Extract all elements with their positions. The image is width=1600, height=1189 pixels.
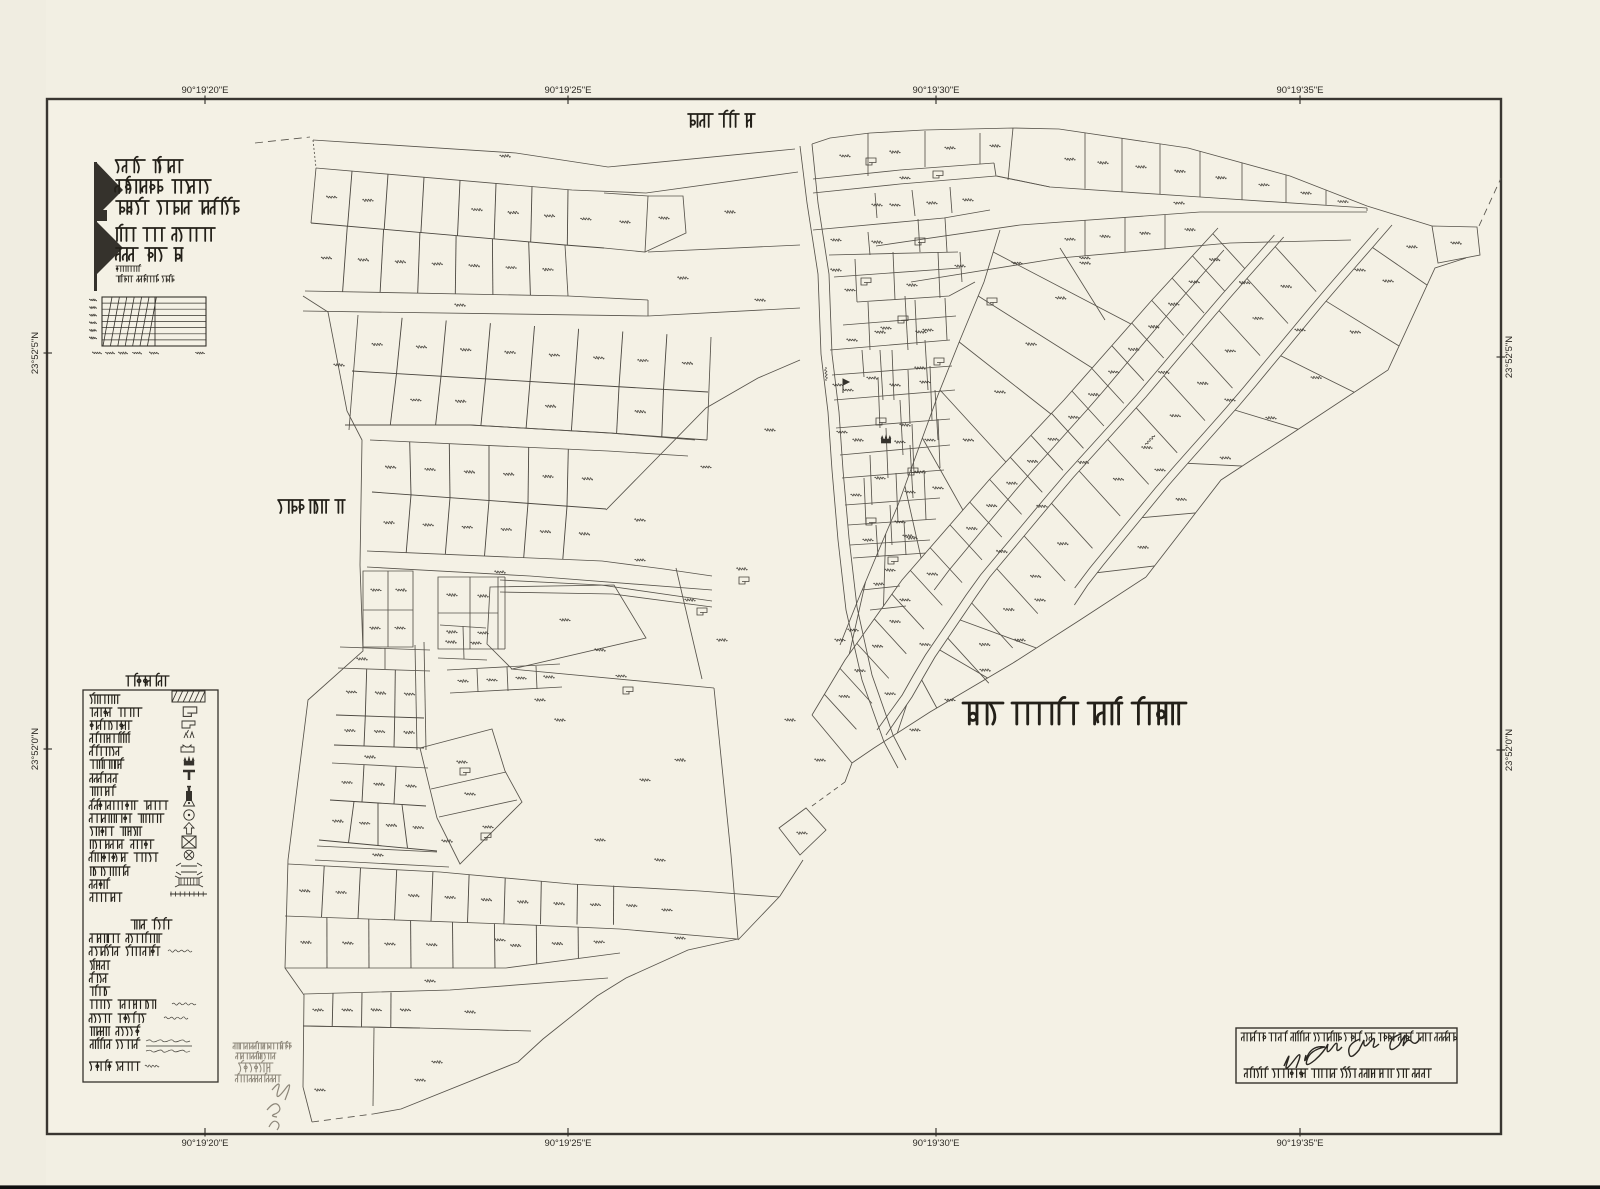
svg-text:90°19'30"E: 90°19'30"E (912, 1138, 959, 1149)
svg-text:90°19'35"E: 90°19'35"E (1276, 1138, 1323, 1149)
svg-text:90°19'25"E: 90°19'25"E (544, 1138, 591, 1149)
svg-text:90°19'20"E: 90°19'20"E (181, 1138, 228, 1149)
svg-text:90°19'25"E: 90°19'25"E (544, 85, 591, 96)
svg-text:90°19'35"E: 90°19'35"E (1276, 85, 1323, 96)
svg-text:90°19'20"E: 90°19'20"E (181, 85, 228, 96)
svg-text:23°52'5"N: 23°52'5"N (1504, 336, 1515, 378)
svg-text:23°52'0"N: 23°52'0"N (1504, 729, 1515, 771)
svg-text:23°52'0"N: 23°52'0"N (30, 728, 41, 770)
svg-text:23°52'5"N: 23°52'5"N (30, 332, 41, 374)
svg-text:90°19'30"E: 90°19'30"E (912, 85, 959, 96)
